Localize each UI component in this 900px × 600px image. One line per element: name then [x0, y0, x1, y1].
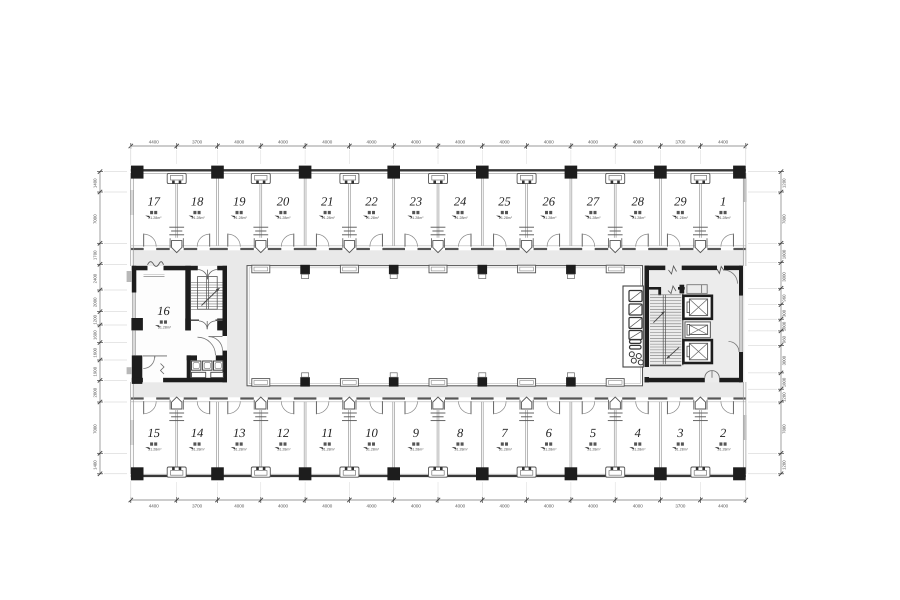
- svg-text:1200: 1200: [782, 178, 787, 188]
- svg-text:1200: 1200: [782, 392, 787, 402]
- svg-text:4000: 4000: [633, 504, 644, 509]
- svg-text:21.28m²: 21.28m²: [675, 216, 689, 220]
- svg-text:7800: 7800: [782, 214, 787, 224]
- svg-text:4400: 4400: [718, 140, 729, 145]
- svg-text:29: 29: [674, 195, 687, 209]
- svg-text:7: 7: [501, 426, 508, 440]
- svg-text:4000: 4000: [455, 140, 466, 145]
- svg-text:4400: 4400: [149, 140, 160, 145]
- svg-text:18: 18: [191, 195, 204, 209]
- svg-text:21.28m²: 21.28m²: [499, 216, 513, 220]
- svg-text:15: 15: [148, 426, 161, 440]
- svg-text:21: 21: [321, 195, 334, 209]
- svg-text:1200: 1200: [782, 460, 787, 470]
- svg-text:21.28m²: 21.28m²: [410, 216, 424, 220]
- svg-text:21.28m²: 21.28m²: [234, 448, 248, 452]
- svg-text:4400: 4400: [718, 504, 729, 509]
- svg-text:6: 6: [546, 426, 553, 440]
- svg-text:4000: 4000: [234, 504, 245, 509]
- svg-text:21.28m²: 21.28m²: [148, 216, 162, 220]
- svg-text:21.28m²: 21.28m²: [587, 448, 601, 452]
- svg-text:21.28m²: 21.28m²: [192, 448, 206, 452]
- svg-text:21.28m²: 21.28m²: [455, 448, 469, 452]
- svg-text:4000: 4000: [455, 504, 466, 509]
- svg-text:1700: 1700: [93, 250, 98, 260]
- svg-text:21.28m²: 21.28m²: [543, 448, 557, 452]
- svg-text:4000: 4000: [588, 140, 599, 145]
- svg-text:4000: 4000: [544, 140, 555, 145]
- svg-text:25: 25: [498, 195, 511, 209]
- svg-text:21.28m²: 21.28m²: [366, 448, 380, 452]
- svg-text:4000: 4000: [234, 140, 245, 145]
- svg-text:2400: 2400: [93, 273, 98, 283]
- svg-text:21.28m²: 21.28m²: [499, 448, 513, 452]
- svg-text:1800: 1800: [782, 249, 787, 259]
- svg-text:21.28m²: 21.28m²: [277, 448, 291, 452]
- svg-text:22: 22: [365, 195, 378, 209]
- svg-text:3700: 3700: [192, 504, 203, 509]
- svg-text:19: 19: [233, 195, 246, 209]
- svg-text:4000: 4000: [278, 140, 289, 145]
- svg-text:1800: 1800: [782, 377, 787, 387]
- svg-text:7000: 7000: [93, 214, 98, 224]
- svg-text:24: 24: [454, 195, 467, 209]
- svg-text:3: 3: [676, 426, 683, 440]
- svg-text:3000: 3000: [782, 272, 787, 282]
- svg-text:21.28m²: 21.28m²: [158, 326, 172, 330]
- svg-text:21.28m²: 21.28m²: [543, 216, 557, 220]
- svg-text:4: 4: [635, 426, 641, 440]
- svg-text:21.28m²: 21.28m²: [675, 448, 689, 452]
- svg-text:10: 10: [365, 426, 378, 440]
- svg-text:21.28m²: 21.28m²: [718, 216, 732, 220]
- svg-text:4000: 4000: [322, 504, 333, 509]
- svg-text:21.28m²: 21.28m²: [455, 216, 469, 220]
- svg-text:1600: 1600: [93, 330, 98, 340]
- svg-text:4000: 4000: [411, 504, 422, 509]
- svg-text:4000: 4000: [278, 504, 289, 509]
- svg-text:4000: 4000: [544, 504, 555, 509]
- svg-text:1900: 1900: [93, 366, 98, 376]
- svg-text:8: 8: [457, 426, 464, 440]
- svg-text:11: 11: [321, 426, 333, 440]
- svg-text:17: 17: [148, 195, 161, 209]
- svg-text:21.28m²: 21.28m²: [322, 448, 336, 452]
- svg-text:4000: 4000: [588, 504, 599, 509]
- svg-text:4000: 4000: [366, 140, 377, 145]
- svg-text:960: 960: [782, 335, 787, 343]
- svg-text:3700: 3700: [675, 140, 686, 145]
- svg-text:27: 27: [587, 195, 600, 209]
- svg-text:3700: 3700: [675, 504, 686, 509]
- svg-text:3700: 3700: [192, 140, 203, 145]
- svg-text:28: 28: [632, 195, 645, 209]
- svg-text:4000: 4000: [499, 504, 510, 509]
- svg-text:13: 13: [233, 426, 246, 440]
- svg-text:23: 23: [410, 195, 423, 209]
- svg-text:21.28m²: 21.28m²: [718, 448, 732, 452]
- svg-text:21.28m²: 21.28m²: [192, 216, 206, 220]
- svg-text:5: 5: [590, 426, 596, 440]
- svg-text:21.28m²: 21.28m²: [632, 216, 646, 220]
- svg-text:1600: 1600: [93, 347, 98, 357]
- svg-text:300: 300: [782, 309, 787, 317]
- svg-text:2: 2: [720, 426, 726, 440]
- svg-text:21.28m²: 21.28m²: [322, 216, 336, 220]
- svg-text:16: 16: [157, 304, 170, 318]
- svg-text:9: 9: [413, 426, 420, 440]
- svg-text:4000: 4000: [322, 140, 333, 145]
- svg-text:4000: 4000: [499, 140, 510, 145]
- svg-text:7000: 7000: [93, 424, 98, 434]
- svg-text:12: 12: [277, 426, 290, 440]
- svg-text:1400: 1400: [93, 460, 98, 470]
- svg-text:1400: 1400: [93, 178, 98, 188]
- svg-text:21.28m²: 21.28m²: [366, 216, 380, 220]
- svg-text:7800: 7800: [782, 424, 787, 434]
- svg-text:14: 14: [191, 426, 204, 440]
- svg-text:4000: 4000: [633, 140, 644, 145]
- svg-text:4000: 4000: [366, 504, 377, 509]
- svg-text:21.28m²: 21.28m²: [632, 448, 646, 452]
- svg-text:2000: 2000: [93, 387, 98, 397]
- svg-text:21.28m²: 21.28m²: [410, 448, 424, 452]
- svg-text:21.28m²: 21.28m²: [277, 216, 291, 220]
- svg-text:1: 1: [720, 195, 726, 209]
- svg-text:21.28m²: 21.28m²: [148, 448, 162, 452]
- svg-text:1800: 1800: [782, 321, 787, 331]
- svg-text:3000: 3000: [782, 355, 787, 365]
- svg-text:4400: 4400: [149, 504, 160, 509]
- svg-text:26: 26: [543, 195, 556, 209]
- svg-text:20: 20: [277, 195, 290, 209]
- svg-text:4000: 4000: [411, 140, 422, 145]
- svg-text:21.28m²: 21.28m²: [234, 216, 248, 220]
- svg-text:1200: 1200: [93, 314, 98, 324]
- svg-text:2000: 2000: [93, 297, 98, 307]
- svg-text:960: 960: [782, 294, 787, 302]
- svg-text:21.28m²: 21.28m²: [587, 216, 601, 220]
